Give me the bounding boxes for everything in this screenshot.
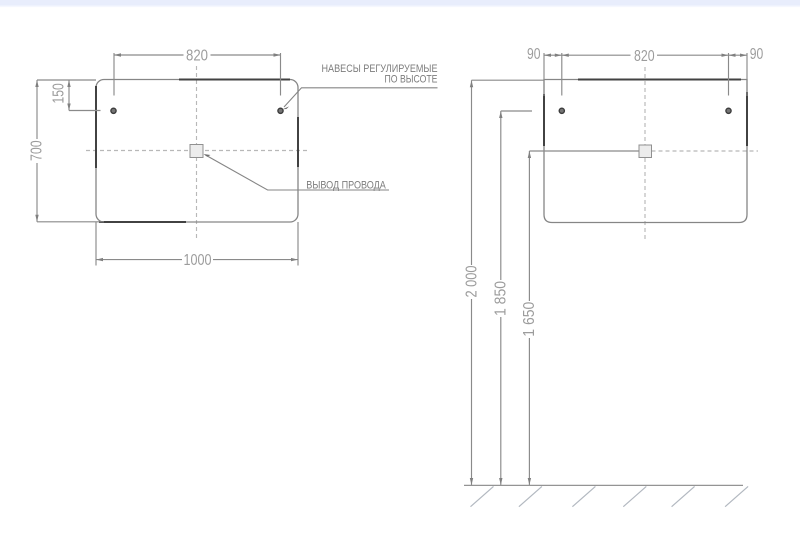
svg-text:1 650: 1 650 xyxy=(521,301,538,336)
svg-text:90: 90 xyxy=(527,46,541,63)
svg-text:90: 90 xyxy=(750,46,764,63)
svg-text:1000: 1000 xyxy=(184,252,212,269)
svg-text:820: 820 xyxy=(634,48,655,65)
svg-text:820: 820 xyxy=(186,47,208,64)
svg-text:ПО ВЫСОТЕ: ПО ВЫСОТЕ xyxy=(385,73,438,85)
svg-text:1 850: 1 850 xyxy=(493,281,510,316)
svg-text:2 000: 2 000 xyxy=(463,265,480,297)
svg-text:700: 700 xyxy=(29,140,46,161)
svg-text:150: 150 xyxy=(51,83,68,104)
